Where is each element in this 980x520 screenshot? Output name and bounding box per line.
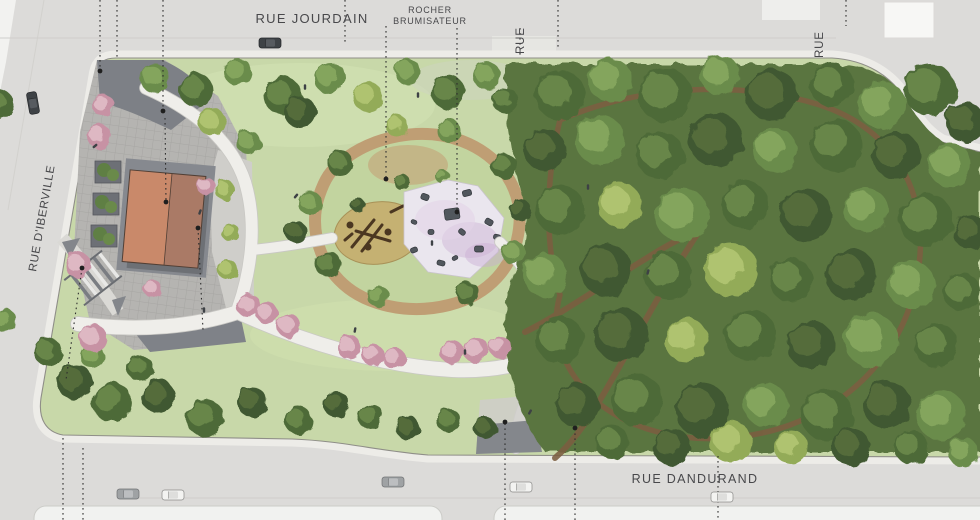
rock <box>475 246 484 252</box>
person-figure <box>203 307 205 313</box>
planters <box>91 161 121 247</box>
person-figure <box>587 184 589 190</box>
callout-dot <box>196 226 201 231</box>
label-rocher-line2: BRUMISATEUR <box>393 16 467 26</box>
callout-dot <box>455 210 460 215</box>
callout-dot <box>98 69 103 74</box>
label-rue-jourdain: RUE JOURDAIN <box>255 11 368 26</box>
car <box>117 489 139 499</box>
callout-dot <box>503 420 508 425</box>
label-rocher-line1: ROCHER <box>408 5 452 15</box>
car <box>711 492 733 502</box>
car <box>510 482 532 492</box>
car <box>162 490 184 500</box>
car <box>382 477 404 487</box>
car <box>259 38 281 48</box>
map-canvas: RUE JOURDAIN ROCHER BRUMISATEUR RUE RUE … <box>0 0 980 520</box>
label-rue-dandurand: RUE DANDURAND <box>632 472 759 486</box>
rock <box>428 230 434 235</box>
person-figure <box>417 92 419 98</box>
person-figure <box>431 240 433 246</box>
label-rue-top-center: RUE <box>515 27 527 54</box>
callout-dot <box>384 177 389 182</box>
callout-dot <box>161 109 166 114</box>
woodland <box>505 55 980 467</box>
callout-dot <box>164 200 169 205</box>
label-rue-top-right: RUE <box>814 31 826 58</box>
callout-dot <box>80 266 85 271</box>
person-figure <box>304 84 306 90</box>
site-plan: RUE JOURDAIN ROCHER BRUMISATEUR RUE RUE … <box>0 0 980 520</box>
person-figure <box>464 349 466 355</box>
callout-dot <box>573 426 578 431</box>
